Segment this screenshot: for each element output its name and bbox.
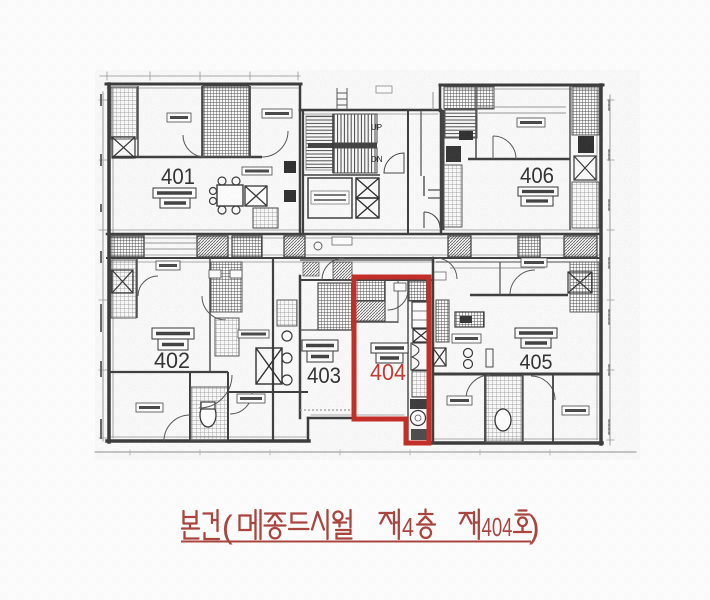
svg-text:): ) xyxy=(529,509,540,545)
svg-text:4: 4 xyxy=(402,512,414,542)
svg-text:(: ( xyxy=(222,509,233,545)
svg-text:404: 404 xyxy=(482,512,513,542)
